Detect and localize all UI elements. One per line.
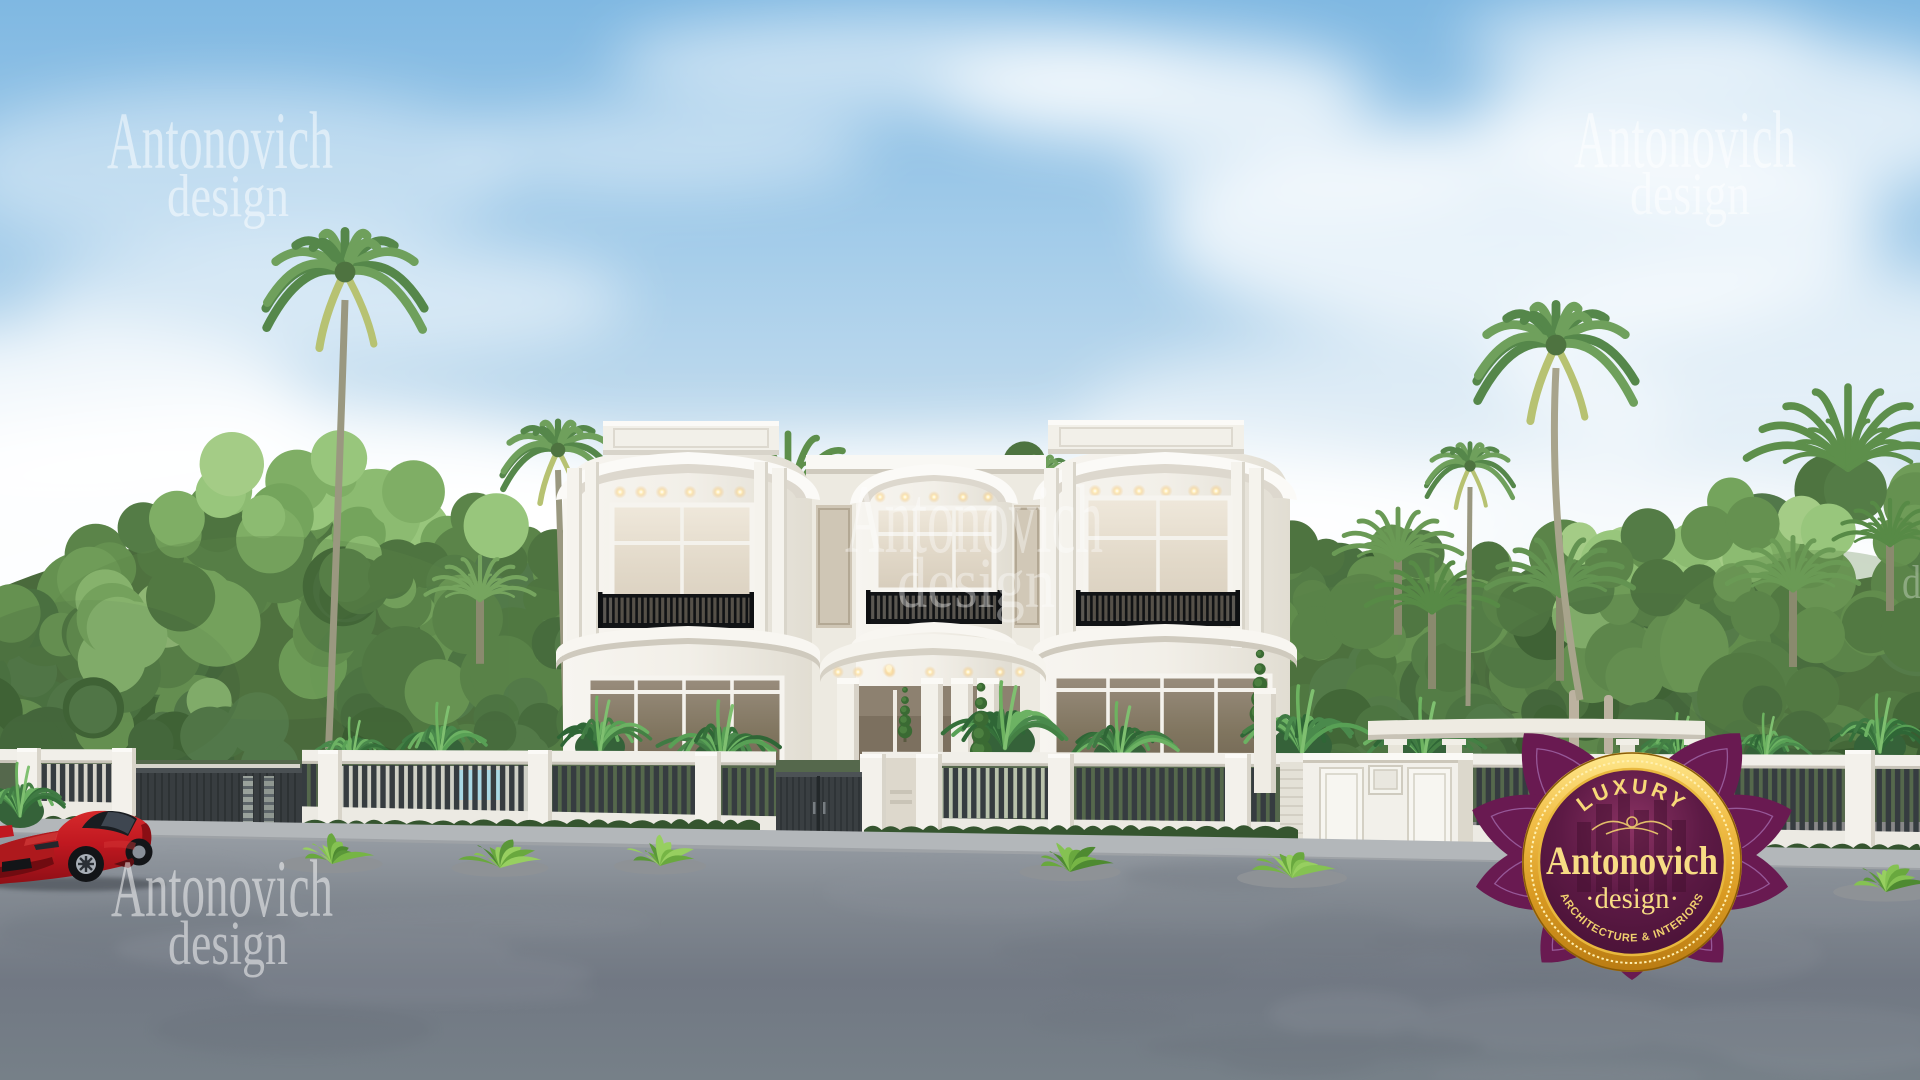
svg-text:design: design — [1902, 556, 1920, 609]
svg-text:design: design — [168, 910, 288, 978]
svg-text:design: design — [897, 543, 1055, 623]
svg-text:Antonovich: Antonovich — [1546, 838, 1718, 883]
svg-text:·design·: ·design· — [1585, 882, 1679, 915]
svg-text:design: design — [167, 163, 289, 229]
svg-text:design: design — [1630, 161, 1750, 227]
